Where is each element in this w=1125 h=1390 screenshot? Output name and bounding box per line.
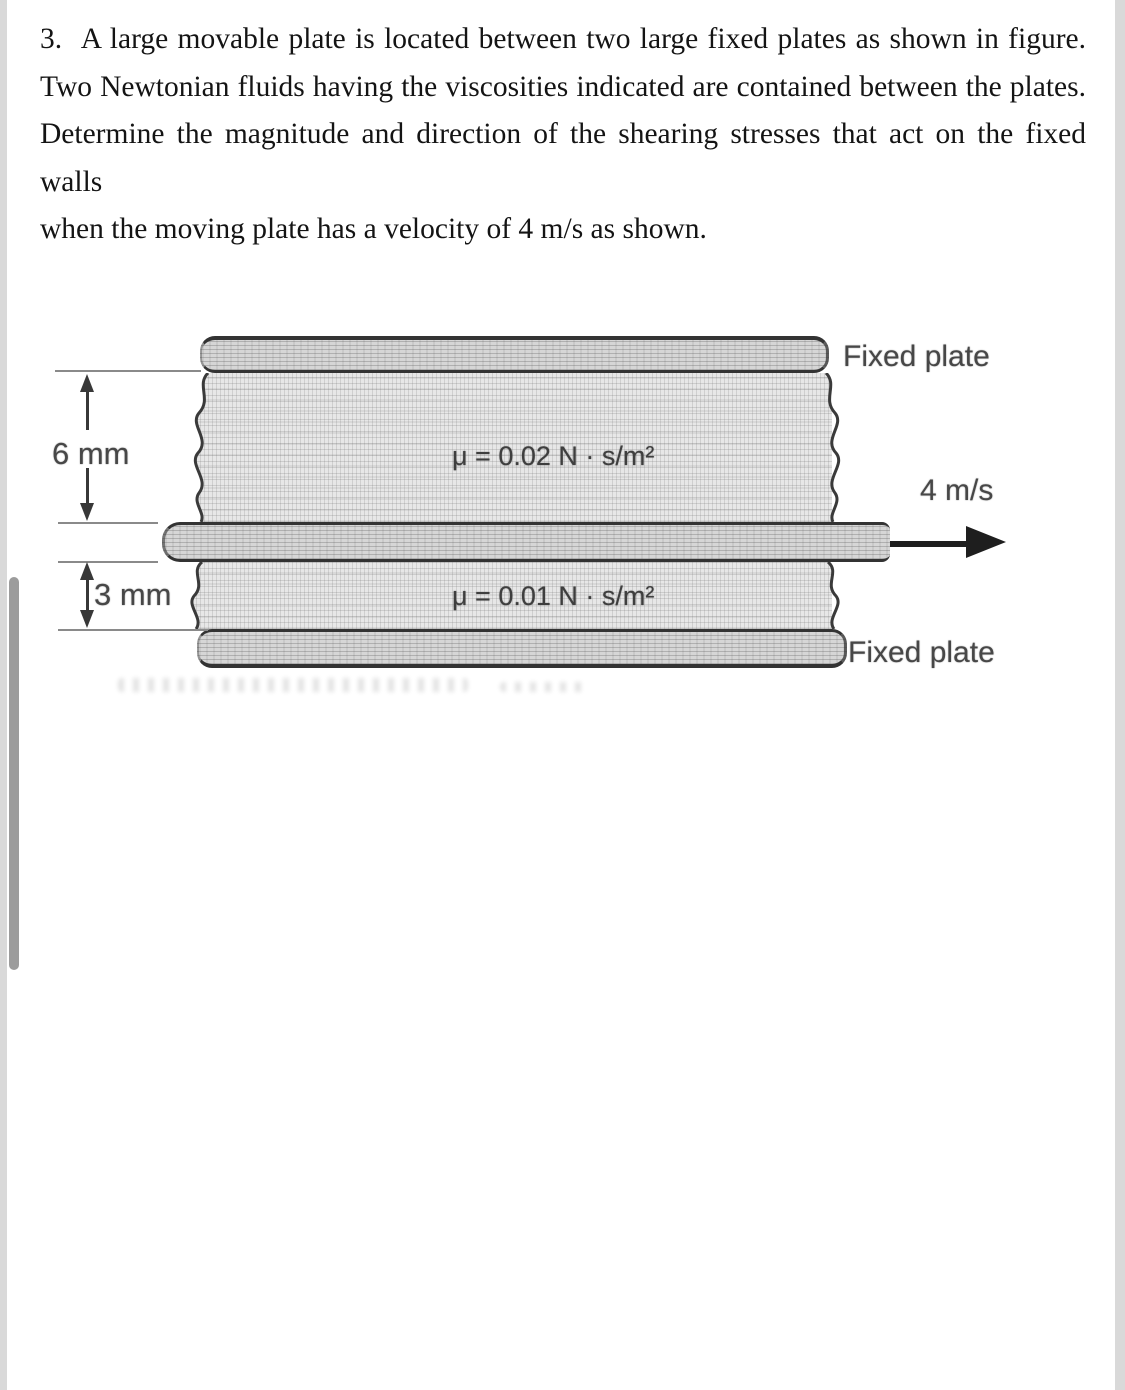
scrollbar-thumb[interactable]: [9, 577, 19, 970]
top-fixed-plate: [200, 336, 829, 373]
page-edge-right: [1115, 0, 1125, 1390]
dimension-line: [86, 576, 89, 612]
fluid-wavy-edge: [816, 562, 848, 629]
bottom-fixed-plate: [197, 629, 847, 668]
down-arrow-icon: [80, 610, 94, 628]
movable-plate: [162, 522, 890, 562]
extension-line: [58, 629, 208, 631]
fluid-wavy-edge: [186, 373, 218, 522]
right-arrow-icon: [966, 526, 1006, 558]
lower-fluid-viscosity-label: μ = 0.01 N · s/m²: [452, 581, 654, 612]
scan-artifact: [500, 682, 590, 692]
problem-line: Two Newtonian fluids having the viscosit…: [40, 64, 1086, 112]
extension-line: [58, 522, 158, 524]
dim-3mm-label: 3 mm: [94, 577, 172, 613]
problem-line: 3. A large movable plate is located betw…: [40, 16, 1086, 64]
problem-line: when the moving plate has a velocity of …: [40, 206, 1086, 254]
right-arrow-icon: [890, 541, 968, 547]
extension-line: [58, 561, 158, 563]
fixed-plate-bottom-label: Fixed plate: [848, 636, 995, 670]
page-edge-left: [0, 0, 7, 1390]
problem-line: Determine the magnitude and direction of…: [40, 111, 1086, 206]
velocity-label: 4 m/s: [920, 474, 993, 508]
problem-statement: 3. A large movable plate is located betw…: [40, 16, 1086, 254]
fluid-wavy-edge: [816, 373, 848, 522]
upper-fluid-viscosity-label: μ = 0.02 N · s/m²: [452, 441, 654, 472]
scan-artifact: [118, 678, 468, 692]
document-page: 3. A large movable plate is located betw…: [0, 0, 1125, 1390]
down-arrow-icon: [80, 503, 94, 521]
dimension-line: [86, 390, 89, 430]
fluid-wavy-edge: [182, 562, 214, 629]
dim-6mm-label: 6 mm: [52, 436, 130, 472]
fixed-plate-top-label: Fixed plate: [843, 340, 990, 374]
dimension-line: [86, 468, 89, 506]
extension-line: [55, 370, 201, 372]
